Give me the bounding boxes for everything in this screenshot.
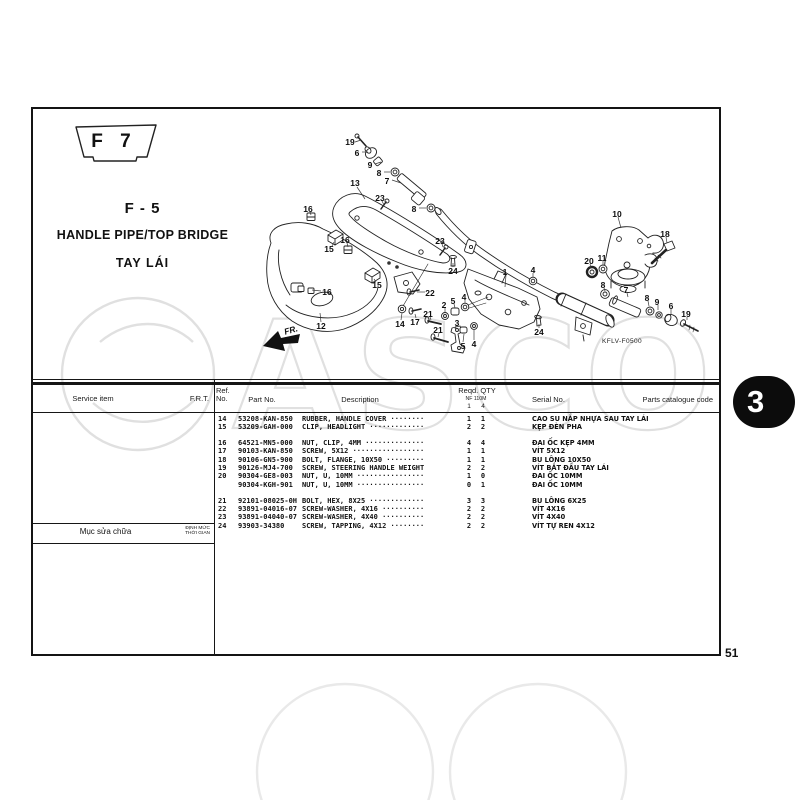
callout-number-18: 18 xyxy=(660,229,670,239)
callout-number-23: 23 xyxy=(435,236,445,246)
section-tag-outline xyxy=(76,125,156,161)
table-cell-ref: 16 xyxy=(214,439,238,447)
table-cell-ref: 15 xyxy=(214,423,238,431)
washer-2-part xyxy=(442,313,449,320)
callout-number-22: 22 xyxy=(425,288,435,298)
callout-number-21: 21 xyxy=(433,325,443,335)
table-cell-q: 2 xyxy=(476,464,490,472)
table-cell-q: 1 xyxy=(476,456,490,464)
table-cell-ref xyxy=(214,481,238,489)
header-description: Description xyxy=(320,395,400,404)
table-cell-q: 0 xyxy=(476,472,490,480)
callout-number-8: 8 xyxy=(377,168,382,178)
table-cell-ref: 22 xyxy=(214,505,238,513)
table-cell-serial: VÍT 5X12 xyxy=(532,447,720,455)
table-cell-ref: 19 xyxy=(214,464,238,472)
frt-vietnamese: ĐỊNH MỨC THỜI GIAN xyxy=(168,526,210,537)
callout-number-13: 13 xyxy=(350,178,360,188)
table-cell-part: 90304-KGH-901 xyxy=(238,481,302,489)
header-service-item: Service item xyxy=(48,394,138,403)
table-cell-serial: BU LÔNG 10X50 xyxy=(532,456,720,464)
callout-number-14: 14 xyxy=(395,319,405,329)
callout-number-5: 5 xyxy=(461,341,466,351)
table-cell-serial: BU LÔNG 6X25 xyxy=(532,497,720,505)
table-cell-desc: BOLT, HEX, 8X25 ············· xyxy=(302,497,462,505)
page-number: 51 xyxy=(725,646,738,660)
screw-19-part xyxy=(358,137,366,146)
table-cell-part: 93891-04016-07 xyxy=(238,505,302,513)
table-cell-ref: 20 xyxy=(214,472,238,480)
collar-5-part xyxy=(451,308,459,315)
table-cell-serial: ĐAI ỐC 10MM xyxy=(532,472,720,480)
table-cell-desc: CLIP, HEADLIGHT ············· xyxy=(302,423,462,431)
callout-number-12: 12 xyxy=(316,321,326,331)
table-cell-desc: BOLT, FLANGE, 10X50 ········· xyxy=(302,456,462,464)
table-cell-q: 2 xyxy=(462,464,476,472)
diagram-code: KFLV-F0500 xyxy=(602,338,642,345)
table-cell-part: 93903-34380 xyxy=(238,522,302,530)
table-cell-desc: SCREW, STEERING HANDLE WEIGHT xyxy=(302,464,462,472)
nut-8-part xyxy=(391,168,399,176)
table-row: 90304-KGH-901NUT, U, 10MM ··············… xyxy=(214,481,720,489)
screw-17-part xyxy=(412,309,421,311)
callout-number-8: 8 xyxy=(412,204,417,214)
table-row: 1990126-MJ4-700SCREW, STEERING HANDLE WE… xyxy=(214,464,720,472)
table-row-gap xyxy=(214,489,720,497)
table-cell-desc: SCREW, 5X12 ················· xyxy=(302,447,462,455)
callout-number-16: 16 xyxy=(303,204,313,214)
table-cell-q: 2 xyxy=(462,513,476,521)
table-cell-q: 1 xyxy=(476,415,490,423)
callout-number-9: 9 xyxy=(368,160,373,170)
table-cell-desc: RUBBER, HANDLE COVER ········ xyxy=(302,415,462,423)
table-cell-desc: NUT, U, 10MM ················ xyxy=(302,472,462,480)
header-reqd-qty: Reqd. QTY xyxy=(440,386,514,395)
header-qty-4: 4 xyxy=(477,403,489,410)
callout-number-7: 7 xyxy=(385,176,390,186)
table-cell-q: 1 xyxy=(462,447,476,455)
table-cell-q: 4 xyxy=(462,439,476,447)
callout-number-8: 8 xyxy=(645,293,650,303)
callout-number-10: 10 xyxy=(612,209,622,219)
clip-9-part xyxy=(373,156,383,166)
table-cell-ref: 17 xyxy=(214,447,238,455)
table-row: 1553209-GAH-000CLIP, HEADLIGHT ·········… xyxy=(214,423,720,431)
washer-14-part xyxy=(398,305,406,313)
table-cell-q: 2 xyxy=(476,522,490,530)
nut-4-part xyxy=(461,303,469,311)
table-cell-q: 4 xyxy=(476,439,490,447)
callout-number-2: 2 xyxy=(442,300,447,310)
service-item-vietnamese: Mục sửa chữa xyxy=(48,527,163,536)
table-cell-q: 2 xyxy=(476,505,490,513)
table-row: 2090304-GE8-003NUT, U, 10MM ············… xyxy=(214,472,720,480)
table-row: 1790103-KAN-850SCREW, 5X12 ·············… xyxy=(214,447,720,455)
table-row: 2293891-04016-07SCREW-WASHER, 4X16 ·····… xyxy=(214,505,720,513)
table-cell-serial: ĐAI ỐC 10MM xyxy=(532,481,720,489)
callout-number-17: 17 xyxy=(410,317,420,327)
catalog-page: ASCO F 7 F - 5 HANDLE PIPE/TOP BRIDGE TA… xyxy=(0,0,800,800)
table-cell-serial: KẸP ĐÈN PHA xyxy=(532,423,720,431)
chapter-tab-number: 3 xyxy=(747,384,764,420)
header-parts-catalogue-code: Parts catalogue code xyxy=(620,395,713,404)
table-cell-q: 2 xyxy=(462,505,476,513)
chapter-tab: 3 xyxy=(733,376,795,428)
callout-number-6: 6 xyxy=(355,148,360,158)
header-model: NF 110M xyxy=(440,396,512,402)
table-cell-desc: SCREW-WASHER, 4X16 ·········· xyxy=(302,505,462,513)
table-cell-part: 93891-04040-07 xyxy=(238,513,302,521)
table-cell-part: 90304-GE8-003 xyxy=(238,472,302,480)
table-cell-ref: 23 xyxy=(214,513,238,521)
callout-number-4: 4 xyxy=(531,265,536,275)
table-cell-q: 1 xyxy=(476,481,490,489)
callout-number-6: 6 xyxy=(669,301,674,311)
table-cell-q: 2 xyxy=(476,513,490,521)
nut-20-part xyxy=(587,267,597,277)
table-cell-ref: 24 xyxy=(214,522,238,530)
callout-number-5: 5 xyxy=(451,296,456,306)
callout-number-24: 24 xyxy=(448,266,458,276)
callout-number-4: 4 xyxy=(462,292,467,302)
callout-number-19: 19 xyxy=(345,137,355,147)
table-cell-part: 90106-GN5-900 xyxy=(238,456,302,464)
callout-number-7: 7 xyxy=(624,285,629,295)
header-serial-no: Serial No. xyxy=(532,395,565,404)
callout-number-8: 8 xyxy=(601,280,606,290)
header-part-no: Part No. xyxy=(232,395,292,404)
callout-leader-line xyxy=(355,140,361,142)
callout-number-3: 3 xyxy=(455,318,460,328)
table-rows: 1453208-KAN-850RUBBER, HANDLE COVER ····… xyxy=(214,415,720,531)
screw-19-right-part xyxy=(684,324,698,331)
callout-number-16: 16 xyxy=(322,287,332,297)
table-cell-part: 53209-GAH-000 xyxy=(238,423,302,431)
table-cell-q: 3 xyxy=(476,497,490,505)
washer-11-part xyxy=(599,265,607,273)
table-cell-q: 1 xyxy=(462,472,476,480)
table-cell-q: 2 xyxy=(462,522,476,530)
callout-number-4: 4 xyxy=(472,339,477,349)
table-cell-serial: VÍT 4X40 xyxy=(532,513,720,521)
callout-number-9: 9 xyxy=(655,297,660,307)
table-cell-part: 92101-08025-0H xyxy=(238,497,302,505)
table-cell-desc: NUT, U, 10MM ················ xyxy=(302,481,462,489)
table-row: 1453208-KAN-850RUBBER, HANDLE COVER ····… xyxy=(214,415,720,423)
table-cell-part: 64521-MN5-000 xyxy=(238,439,302,447)
table-cell-q: 2 xyxy=(462,423,476,431)
callout-number-15: 15 xyxy=(324,244,334,254)
table-cell-q: 3 xyxy=(462,497,476,505)
callout-number-21: 21 xyxy=(423,309,433,319)
table-cell-desc: NUT, CLIP, 4MM ·············· xyxy=(302,439,462,447)
callout-number-19: 19 xyxy=(681,309,691,319)
table-row: 2493903-34380SCREW, TAPPING, 4X12 ······… xyxy=(214,522,720,530)
table-cell-serial: CAO SU NẮP NHỰA SAU TAY LÁI xyxy=(532,415,720,423)
callout-number-16: 16 xyxy=(340,235,350,245)
table-row: 2393891-04040-07SCREW-WASHER, 4X40 ·····… xyxy=(214,513,720,521)
table-cell-q: 2 xyxy=(476,423,490,431)
table-cell-desc: SCREW-WASHER, 4X40 ·········· xyxy=(302,513,462,521)
table-cell-q: 1 xyxy=(462,415,476,423)
callout-number-23: 23 xyxy=(375,193,385,203)
table-cell-q: 0 xyxy=(462,481,476,489)
callout-number-20: 20 xyxy=(584,256,594,266)
header-frt: F.R.T. xyxy=(175,394,209,403)
table-cell-q: 1 xyxy=(462,456,476,464)
table-row: 1890106-GN5-900BOLT, FLANGE, 10X50 ·····… xyxy=(214,456,720,464)
table-cell-ref: 18 xyxy=(214,456,238,464)
header-qty-1: 1 xyxy=(463,403,475,410)
table-cell-part: 90103-KAN-850 xyxy=(238,447,302,455)
table-cell-part: 53208-KAN-850 xyxy=(238,415,302,423)
callout-number-11: 11 xyxy=(598,253,607,263)
table-cell-serial: VÍT TỰ REN 4X12 xyxy=(532,522,720,530)
table-cell-q: 1 xyxy=(476,447,490,455)
table-row: 2192101-08025-0HBOLT, HEX, 8X25 ········… xyxy=(214,497,720,505)
bolt-21-part xyxy=(428,321,441,324)
callout-number-1: 1 xyxy=(503,267,508,277)
table-cell-desc: SCREW, TAPPING, 4X12 ········ xyxy=(302,522,462,530)
callout-number-24: 24 xyxy=(534,327,544,337)
table-cell-ref: 21 xyxy=(214,497,238,505)
table-row-gap xyxy=(214,431,720,439)
table-row: 1664521-MN5-000NUT, CLIP, 4MM ··········… xyxy=(214,439,720,447)
table-cell-ref: 14 xyxy=(214,415,238,423)
table-cell-part: 90126-MJ4-700 xyxy=(238,464,302,472)
callout-number-15: 15 xyxy=(372,280,382,290)
